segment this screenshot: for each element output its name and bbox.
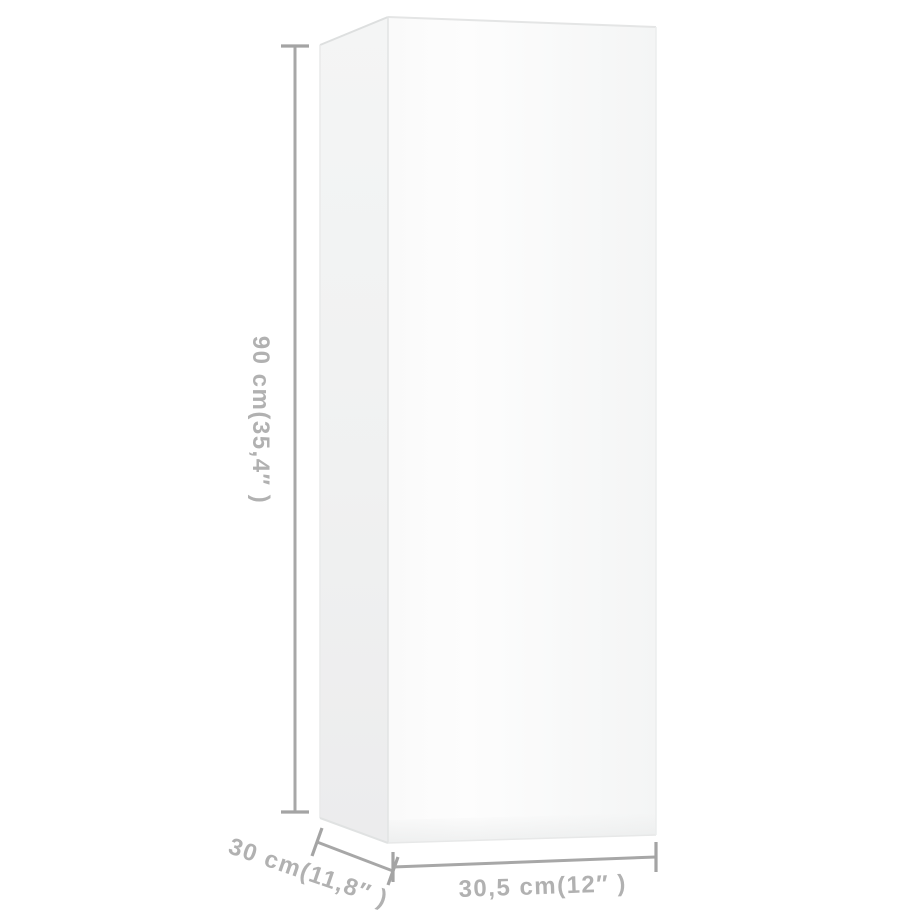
cabinet [320,17,656,843]
cabinet-dimension-diagram: 90 cm(35,4″ ) 30 cm(11,8″ ) 30,5 cm(12″ … [0,0,920,920]
product-dimension-image: 90 cm(35,4″ ) 30 cm(11,8″ ) 30,5 cm(12″ … [0,0,920,920]
cabinet-side-face [320,17,388,843]
cabinet-front-face [388,17,656,843]
height-dimension-label: 90 cm(35,4″ ) [247,336,274,504]
